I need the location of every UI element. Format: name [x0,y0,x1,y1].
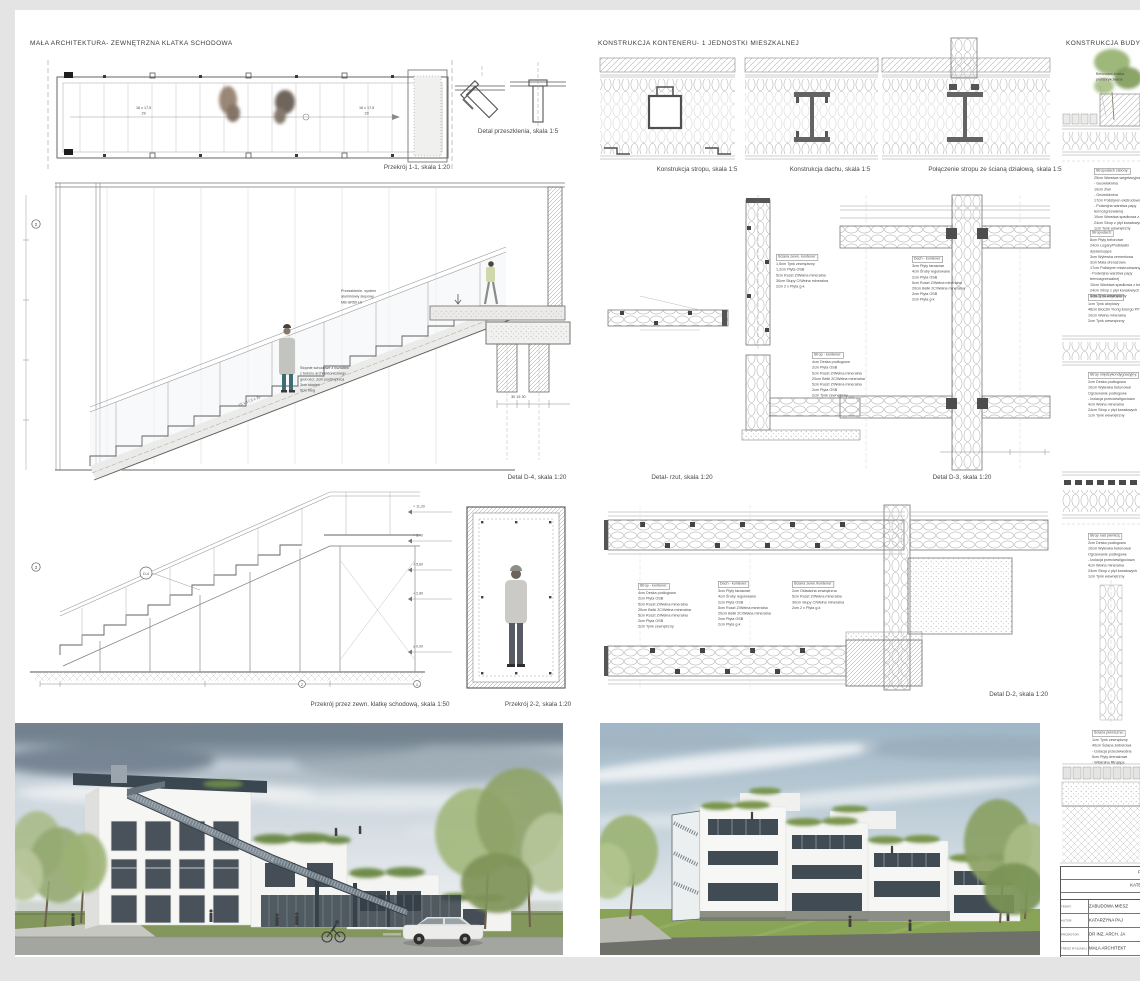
stair-elevation: 2 1 D-4 [30,492,452,687]
layers-body: 3cm Płyty tarasowe 4cm Śruby regulowane … [912,264,993,303]
layers-dach-kontener: Dach - kontener: 3cm Płyty tarasowe 4cm … [912,256,993,303]
layers-d2-strop: Strop - kontener: 4cm Deska podłogowa 2c… [638,583,719,630]
layers-body: 2cm Deska podłogowa 10cm Wylewka betonow… [1088,380,1140,419]
level-mark-3: + 5,60 [413,563,423,567]
layers-strop-nad-piwnica: Strop nad piwnicą: 2cm Deska podłogowa 1… [1088,533,1140,580]
layers-title: Strop - kontener: [638,583,669,590]
level-mark-2: + 8,40 [413,534,423,538]
temat-label-cell: TEMAT: [1061,900,1089,913]
layers-body: 3cm Płyty tarasowe 4cm Śruby regulowane … [718,589,799,628]
layers-body: 25cm Warstwa wegetacyjna - Geowłóknina 1… [1094,176,1140,232]
layers-body: 2cm Okładzina zewnętrzna 5cm Ruszt Z/Weł… [792,589,873,611]
panel-polaczenie [882,38,1050,159]
temat-label: TEMAT: [1061,905,1071,908]
layers-d2-dach: Dach - kontener: 3cm Płyty tarasowe 4cm … [718,581,799,628]
section-title-stairs: MAŁA ARCHITEKTURA- ZEWNĘTRZNA KLATKA SCH… [30,40,233,47]
container-detail-panels [600,38,1050,159]
layers-title: Strop międzykondygnacyjny: [1088,372,1139,379]
caption-polaczenie-stropu: Połączenie stropu ze ścianą działową, sk… [905,166,1085,173]
layers-sciana-zewnetrzna: Ściana zewnętrzna: 1cm Tynk akrylowy 48c… [1088,294,1140,324]
section-title-container: KONSTRUKCJA KONTENERU- 1 JEDNOSTKI MIESZ… [598,40,799,47]
layers-strop-miedzykondygnacyjny: Strop międzykondygnacyjny: 2cm Deska pod… [1088,372,1140,419]
rendering-right [600,723,1040,955]
level-mark-5: ± 0,00 [413,645,423,649]
plan-dimension-right: 16 x 17,5 29 [348,106,385,117]
promotor-label-cell: PROMOTOR: [1061,928,1089,941]
layers-title: Strop nad piwnicą: [1088,533,1122,540]
basement-ground-detail [1062,764,1140,862]
tresc-label-cell: TREŚĆ RYSUNKU: [1061,942,1089,955]
title-block-row-temat: TEMAT: ZABUDOWA MIESZ [1061,900,1140,914]
layers-sciana-piwniczna: Ściana piwniczna: 1cm Tynk zewnętrzny 40… [1092,730,1140,766]
layers-stropodach-zielony: Stropodach zielony: 25cm Warstwa wegetac… [1094,168,1140,232]
road [15,937,563,955]
layers-title: Strop - kontener: [812,352,843,359]
wall-section-band-2 [1062,472,1140,524]
layers-body: 8cm Płyty betonowe 24cm Legary/Podkładki… [1090,238,1140,299]
layers-title: Stropodach zielony: [1094,168,1130,175]
detail-bubble-d4: D-4 [143,572,149,576]
layers-body: 2cm Deska podłogowa 10cm Wylewka betonow… [1088,541,1140,580]
annotation-glazing: Przeszklenie- system aluminiowy słupowy … [341,289,409,306]
temat-value: ZABUDOWA MIESZ [1089,904,1128,908]
level-mark-1: + 11,20 [413,505,425,509]
layers-title: Stropodach: [1090,230,1114,237]
annotation-steps: Stopnie schodowe z kształtek z betonu ar… [300,366,371,394]
caption-detal-d2: Detal D-2, skala 1:20 [928,691,1048,698]
layers-sciana-kontener: Ściana zewn. kontener: 1,5cm Tynk zewnęt… [776,254,857,290]
title-block-header-2: KATE [1061,880,1140,893]
glazing-detail-drawing [455,62,566,130]
layers-body: 4cm Deska podłogowa 2cm Płyta OSB 5cm Ru… [638,591,719,630]
green-roof-detail [1062,49,1140,161]
layers-title: Ściana zewn./kontener: [792,581,834,588]
title-block-row-promotor: PROMOTOR: DR INŻ. ARCH. JA [1061,928,1140,942]
plan-drawing [48,60,452,172]
autor-label-cell: AUTOR: [1061,914,1089,927]
promotor-label: PROMOTOR: [1061,933,1079,936]
autor-value: KATARZYNA PAJ [1089,918,1123,922]
title-block: P KATE TEMAT: ZABUDOWA MIESZ AUTOR: KATA… [1060,866,1140,957]
panel-dach [745,58,878,159]
section-title-building: KONSTRUKCJA BUDYNKU NA [1066,40,1140,47]
autor-label: AUTOR: [1061,919,1072,922]
layers-strop-kontener: Strop - kontener: 4cm Deska podłogowa 2c… [812,352,893,399]
title-block-row-tresc: TREŚĆ RYSUNKU: MAŁA ARCHITEKT [1061,942,1140,956]
promotor-value: DR INŻ. ARCH. JA [1089,932,1125,936]
caption-przekroj-1-1: Przekrój 1-1, skala 1:20 [310,164,450,171]
title-block-header-2-text: KATE [1130,884,1140,888]
layers-body: 1cm Tynk zewnętrzny 40cm Ściana żelbetow… [1092,738,1140,766]
plan-people-blurred [219,86,295,124]
caption-konstrukcja-dachu: Konstrukcja dachu, skala 1:5 [760,166,900,173]
layers-title: Ściana zewn. kontener: [776,254,818,261]
caption-przekroj-2-2: Przekrój 2-2, skala 1:20 [478,701,598,708]
layers-stropodach: Stropodach: 8cm Płyty betonowe 24cm Lega… [1090,230,1140,299]
caption-przekroj-klatka: Przekrój przez zewn. klatkę schodową, sk… [290,701,470,708]
layers-title: Dach - kontener: [718,581,749,588]
footing-dimensions: 30 15 30 [492,395,545,401]
tresc-label: TREŚĆ RYSUNKU: [1061,947,1087,950]
caption-detal-d4: Detal D-4, skala 1:20 [477,474,597,481]
wall-section-band-1 [1062,336,1140,365]
level-mark-4: + 2,80 [413,592,423,596]
layers-title: Ściana piwniczna: [1092,730,1125,737]
caption-detal-d3: Detal D-3, skala 1:20 [902,474,1022,481]
tresc-value: MAŁA ARCHITEKT [1089,946,1126,950]
layers-title: Dach - kontener: [912,256,943,263]
title-block-row-autor: AUTOR: KATARZYNA PAJ [1061,914,1140,928]
caption-detal-przeszklenia: Detal przeszklenia, skala 1:5 [458,128,578,135]
annotation-kostka: Betonowa kostka prefabrykowana [1096,72,1133,83]
layers-body: 1,5cm Tynk zewnętrzny 1,2cm Płyta OSB 5c… [776,262,857,290]
title-block-divider [1061,893,1140,900]
plan-dimension-left: 16 x 17,5 29 [125,106,162,117]
presentation-board: 2 2 [0,0,1140,981]
detal-rzut-drawing [608,195,860,440]
rendering-left [15,723,563,955]
layers-d2-sciana: Ściana zewn./kontener: 2cm Okładzina zew… [792,581,873,611]
caption-konstrukcja-stropu: Konstrukcja stropu, skala 1:5 [627,166,767,173]
detal-d3-drawing [840,195,1050,470]
section-2-2-drawing [467,507,565,688]
title-block-header-1: P [1061,867,1140,880]
layers-body: 4cm Deska podłogowa 2cm Płyta OSB 5cm Ru… [812,360,893,399]
layers-body: 1cm Tynk akrylowy 48cm Bloczki Ytong Ene… [1088,302,1140,324]
caption-detal-rzut: Detal- rzut, skala 1:20 [622,474,742,481]
panel-strop [600,58,735,159]
layers-title: Ściana zewnętrzna: [1088,294,1124,301]
